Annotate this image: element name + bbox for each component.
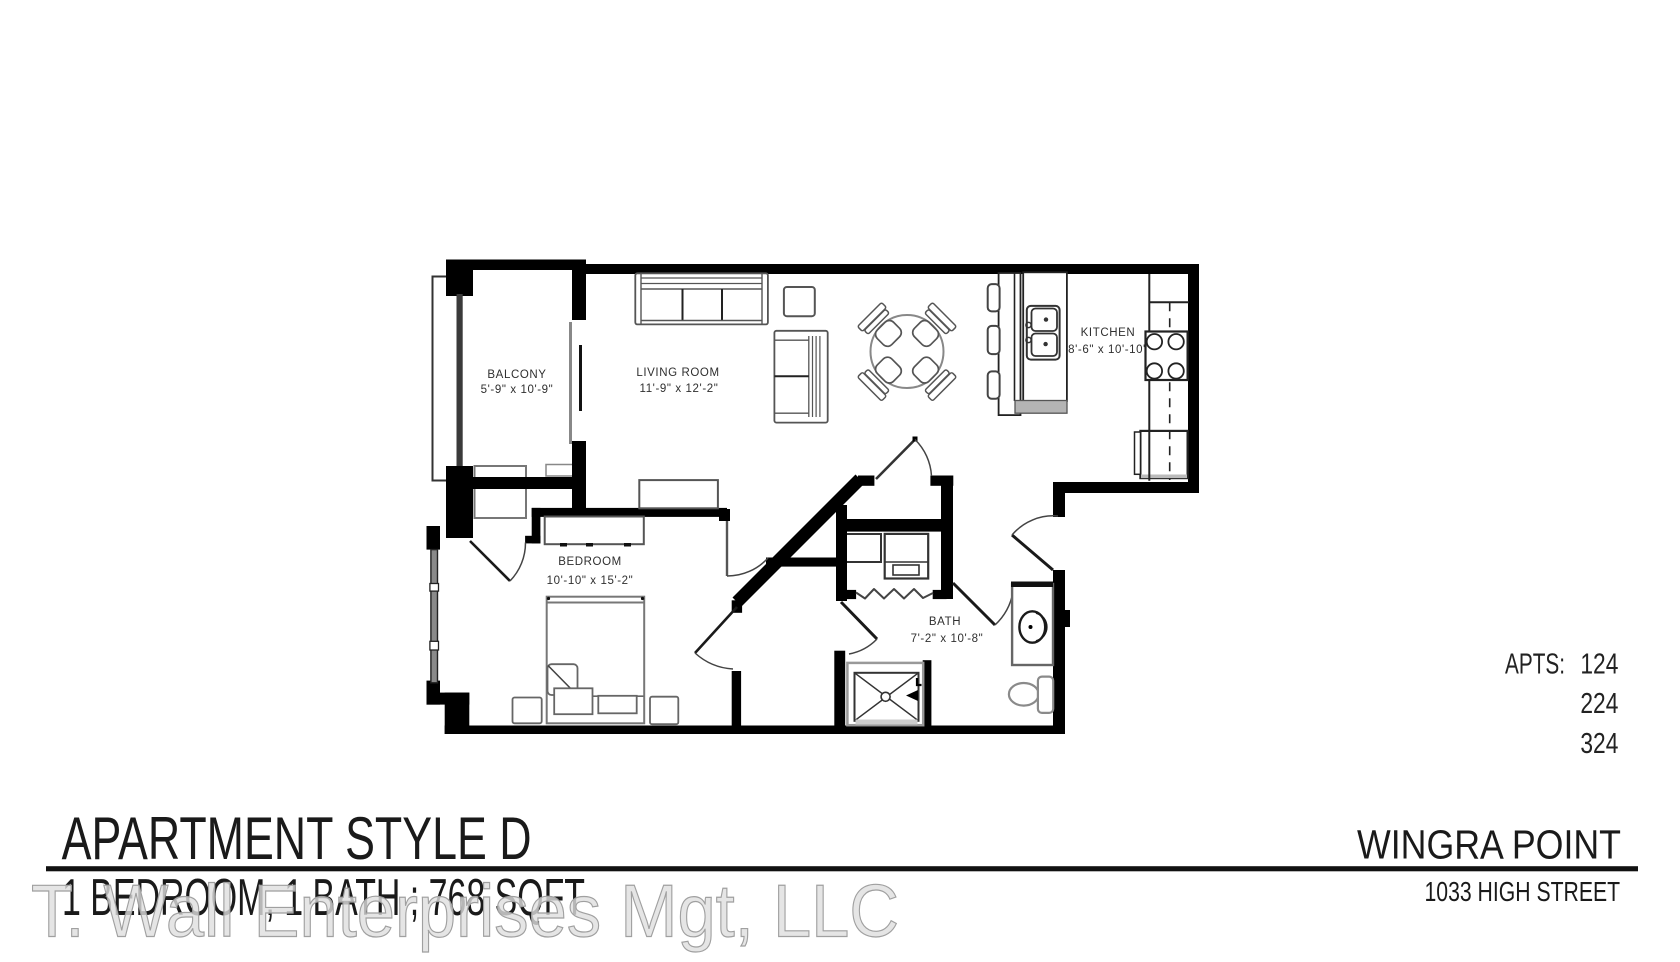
svg-text:324: 324 xyxy=(1580,728,1618,760)
svg-text:LIVING ROOM: LIVING ROOM xyxy=(636,367,719,379)
svg-text:BATH: BATH xyxy=(929,616,961,628)
svg-text:BEDROOM: BEDROOM xyxy=(558,556,622,568)
svg-text:5'-9" x 10'-9": 5'-9" x 10'-9" xyxy=(481,384,554,396)
svg-text:APARTMENT STYLE D: APARTMENT STYLE D xyxy=(62,805,532,872)
svg-text:7'-2" x 10'-8": 7'-2" x 10'-8" xyxy=(911,633,984,645)
svg-text:11'-9" x 12'-2": 11'-9" x 12'-2" xyxy=(640,383,719,395)
svg-text:124: 124 xyxy=(1580,649,1618,681)
svg-text:KITCHEN: KITCHEN xyxy=(1081,327,1136,339)
svg-text:T. Wall Enterprises Mgt, LLC: T. Wall Enterprises Mgt, LLC xyxy=(31,870,899,953)
svg-text:10'-10" x 15'-2": 10'-10" x 15'-2" xyxy=(547,575,634,587)
svg-text:1033 HIGH STREET: 1033 HIGH STREET xyxy=(1425,876,1621,907)
svg-text:BALCONY: BALCONY xyxy=(487,369,546,381)
svg-text:224: 224 xyxy=(1580,688,1618,720)
svg-text:8'-6" x 10'-10": 8'-6" x 10'-10" xyxy=(1068,344,1148,356)
svg-text:WINGRA POINT: WINGRA POINT xyxy=(1357,822,1621,868)
svg-text:APTS:: APTS: xyxy=(1505,649,1565,681)
